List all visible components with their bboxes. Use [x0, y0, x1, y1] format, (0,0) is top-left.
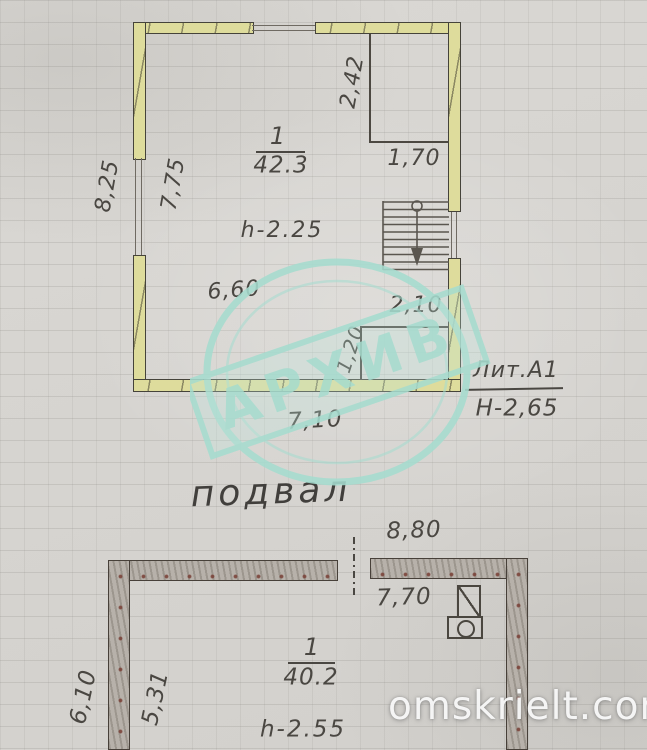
furnace-door-icon	[457, 620, 475, 638]
upper-room-area: 42.3	[253, 155, 308, 178]
dim-lower-left-outer: 6,10	[67, 668, 101, 727]
upper-closet-partition-horizontal	[369, 141, 449, 143]
floorplan-photo: 8,25 7,75 2,42 1,70 1 42.3 h-2.25 6,60 2…	[0, 0, 647, 750]
lower-wall-top-left-segment	[108, 560, 338, 581]
dim-closet-depth: 2,42	[338, 54, 369, 110]
lower-wall-top-right-segment	[370, 558, 528, 579]
dim-lower-top-outer: 8,80	[386, 519, 442, 544]
upper-wall-right-upper-segment	[448, 22, 461, 212]
lower-ceiling-height: h-2.55	[260, 719, 346, 742]
upper-window-top	[252, 25, 317, 31]
dim-lower-top-inner: 7,70	[376, 586, 432, 611]
dim-closet-width: 1,70	[388, 148, 441, 170]
upper-room-number: 1	[270, 124, 286, 148]
site-watermark: omskrielt.com	[388, 684, 647, 729]
upper-wall-top-right-segment	[315, 22, 461, 34]
furnace-flue-icon	[457, 585, 481, 618]
upper-wall-top-left-segment	[133, 22, 254, 34]
dim-lower-left-inner: 5,31	[139, 669, 173, 728]
upper-window-left	[135, 158, 142, 257]
section-break-line	[353, 537, 355, 597]
lower-wall-left	[108, 560, 130, 750]
dim-left-outer: 8,25	[93, 158, 124, 214]
upper-wall-left-lower-segment	[133, 255, 146, 392]
upper-wall-left-upper-segment	[133, 22, 146, 160]
archive-stamp: АРХИВ	[190, 248, 510, 498]
dim-left-inner: 7,75	[159, 156, 190, 212]
lower-room-number: 1	[304, 635, 320, 659]
upper-ceiling-height: h-2.25	[241, 220, 324, 242]
upper-closet-partition-vertical	[369, 34, 371, 143]
stamp-text: АРХИВ	[209, 302, 465, 443]
lower-room-area: 40.2	[283, 667, 338, 690]
